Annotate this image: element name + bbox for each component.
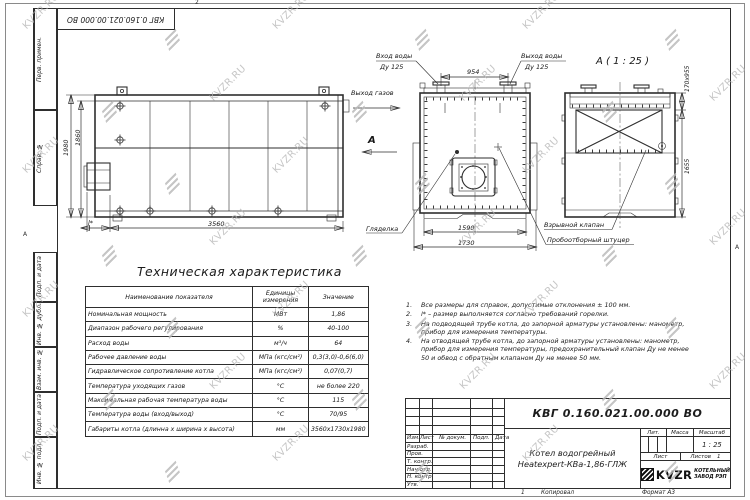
dim-height-1980: 1980 xyxy=(62,139,70,156)
view-a-title: А ( 1 : 25 ) xyxy=(596,56,649,67)
table-row: Максимальная рабочая температура воды°С1… xyxy=(86,393,369,407)
margin-label: Перв. примен. xyxy=(34,9,45,109)
kvzr-logo-icon xyxy=(641,468,654,481)
table-row: Расход водым³/ч64 xyxy=(86,336,369,350)
dim-height-1655: 1655 xyxy=(684,159,691,174)
product-name: Котел водогрейный Heatexpert-КВа-1,86-ГЛ… xyxy=(505,429,641,488)
margin-label: Подп. и дата xyxy=(34,393,45,436)
scale-value: 1 : 25 xyxy=(694,437,730,452)
table-row: Гидравлическое сопротивление котлаМПа (к… xyxy=(86,365,369,379)
table-row: Рабочее давление водыМПа (кгс/см²)0,3(3,… xyxy=(86,350,369,364)
table-row: Габариты котла (длинна х ширина х высота… xyxy=(86,422,369,436)
dim-height-1860: 1860 xyxy=(74,129,82,146)
margin-label: Подп. и дата xyxy=(34,253,45,301)
scale-label: Масштаб xyxy=(694,429,730,436)
note-item: 1.Все размеры для справок, допустимые от… xyxy=(406,301,693,309)
doc-number: КВГ 0.160.021.00.000 ВО xyxy=(505,399,730,429)
copied-label: Копировал xyxy=(541,490,574,496)
label-water-out: Выход воды xyxy=(521,52,562,60)
zone-marker-right: А xyxy=(735,244,739,251)
margin-label: Взам. инв. № xyxy=(34,348,45,391)
label-water-out-dn: Ду 125 xyxy=(525,63,548,71)
margin-box-podp-data-2: Подп. и дата xyxy=(33,392,57,437)
title-block: Изм. Лист № докум. Подп. Дата Разраб. Пр… xyxy=(405,398,731,489)
mass-label: Масса xyxy=(667,429,694,436)
margin-box-perv-primen: Перв. примен. xyxy=(33,8,57,110)
row-nachotd: Нач.отд. xyxy=(407,467,432,473)
zone-marker-left: А xyxy=(23,231,27,238)
title-block-signatures: Изм. Лист № докум. Подп. Дата Разраб. Пр… xyxy=(406,399,505,488)
dim-nozzles-954: 954 xyxy=(467,68,479,76)
sheet-label: Лист xyxy=(641,453,681,460)
label-water-in: Вход воды xyxy=(376,52,412,60)
table-row: Номинальная мощностьМВт1,86 xyxy=(86,308,369,322)
sheets-label: Листов xyxy=(690,454,711,460)
title-block-meta: Лит. Масса Масштаб 1 : 25 Лист Листов xyxy=(641,429,730,488)
note-item: 3.На подводящей трубе котла, до запорной… xyxy=(406,320,693,337)
sheets-value: 1 xyxy=(717,454,721,460)
dim-flue-170x955: 170х955 xyxy=(684,66,691,92)
margin-box-vzam-inv: Взам. инв. № xyxy=(33,347,57,392)
col-sign: Подп. xyxy=(473,435,490,441)
label-explosion-valve: Взрывной клапан xyxy=(544,221,604,229)
label-gas-out: Выход газов xyxy=(351,89,394,97)
col-doc: № докум. xyxy=(439,435,466,441)
table-row: Температура воды (вход/выход)°С70/95 xyxy=(86,408,369,422)
col-date: Дата xyxy=(495,435,509,441)
note-item: 4.На отводящей трубе котла, до запорной … xyxy=(406,337,693,362)
margin-box-inv-dubl: Инв. № дубл. xyxy=(33,302,57,347)
margin-label: Справ. № xyxy=(34,111,45,205)
label-sight-glass: Гляделка xyxy=(366,225,398,233)
dim-burner-l: l* xyxy=(88,219,93,227)
row-razrab: Разраб. xyxy=(407,444,429,450)
margin-label: Инв. № дубл. xyxy=(34,303,45,346)
col-header-value: Значение xyxy=(309,287,369,308)
col-izm: Изм. xyxy=(407,435,420,441)
lit-label: Лит. xyxy=(641,429,667,436)
notes-block: 1.Все размеры для справок, допустимые от… xyxy=(406,301,693,363)
dim-length-3560: 3560 xyxy=(208,220,225,228)
row-prov: Пров. xyxy=(407,451,423,457)
col-header-unit: Единицы измерения xyxy=(253,287,309,308)
label-water-in-dn: Ду 125 xyxy=(380,63,403,71)
margin-label: Инв. № подл. xyxy=(34,438,45,488)
dim-width-1590: 1590 xyxy=(458,224,475,232)
view-direction-mark: А xyxy=(368,135,376,146)
bottom-zone-number: 1 xyxy=(521,490,525,496)
dim-width-1730: 1730 xyxy=(458,239,475,247)
drawing-sheet: Перв. примен. Справ. № Подп. и дата Инв.… xyxy=(0,0,750,500)
format-label: Формат А3 xyxy=(642,490,675,496)
tech-table: Наименование показателя Единицы измерени… xyxy=(85,286,369,437)
zone-marker-top: 2 xyxy=(195,0,199,6)
kvzr-logo-subtext: КОТЕЛЬНЫЙ ЗАВОД РЭП xyxy=(694,469,730,480)
row-tkontr: Т. контр. xyxy=(407,459,433,465)
margin-box-inv-podl: Инв. № подл. xyxy=(33,437,57,489)
tech-table-title: Техническая характеристика xyxy=(137,264,342,279)
note-item: 2.l* – размер выполняется согласно требо… xyxy=(406,310,693,318)
label-sampling-fitting: Пробоотборный штуцер xyxy=(547,236,630,244)
col-header-name: Наименование показателя xyxy=(86,287,253,308)
doc-number-rotated: КВГ 0.160.021.00.000 ВО xyxy=(67,15,164,24)
col-list: Лист xyxy=(420,435,434,441)
table-row: Диапазон рабочего регулирования%40-100 xyxy=(86,322,369,336)
kvzr-logo-text: KVZR xyxy=(656,468,692,482)
table-row: Температура уходящих газов°Сне более 220 xyxy=(86,379,369,393)
row-nkontr: Н. контр. xyxy=(407,474,433,480)
margin-box-podp-data-1: Подп. и дата xyxy=(33,252,57,302)
rotated-doc-number-stamp: КВГ 0.160.021.00.000 ВО xyxy=(57,8,175,30)
margin-box-sprav: Справ. № xyxy=(33,110,57,206)
company-logo: KVZR КОТЕЛЬНЫЙ ЗАВОД РЭП xyxy=(641,461,730,488)
row-utv: Утв. xyxy=(407,482,419,488)
